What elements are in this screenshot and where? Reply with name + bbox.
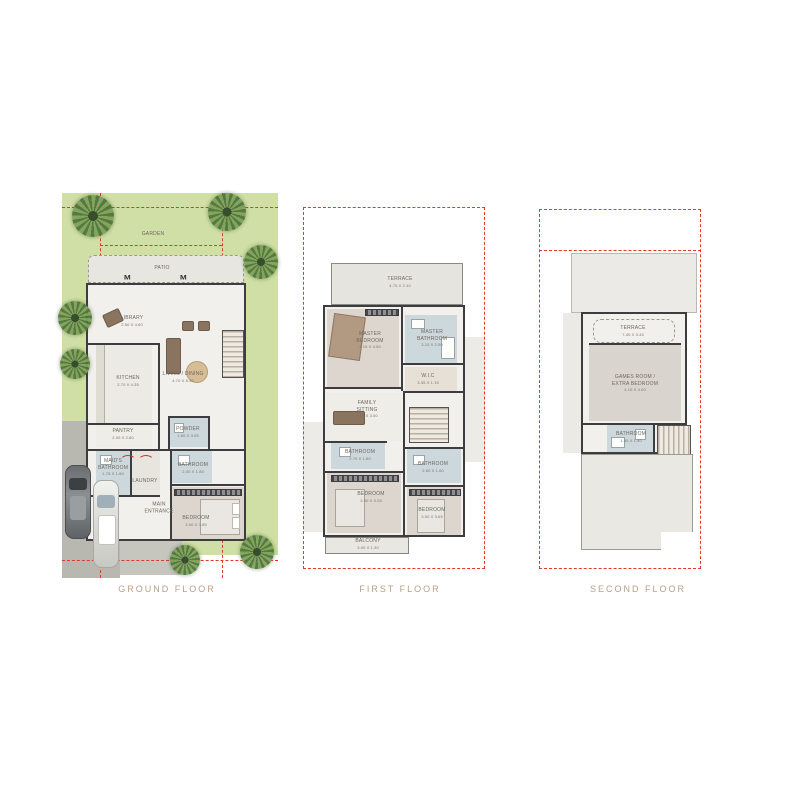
armchair — [198, 321, 210, 331]
ground-floor-plan: M M GARDEN PATIO LIBRARY 2.50 — [62, 193, 278, 578]
room-label-bathroom-2: BATHROOM 2.60 X 1.60 — [418, 461, 448, 473]
wall-segment — [403, 363, 465, 365]
first-floor-plan: TERRACE 4.70 X 2.10 MASTER BEDROOM 4.15 … — [295, 197, 492, 580]
palm-tree — [170, 545, 200, 575]
room-dims: 7.40 X 3.45 — [622, 332, 644, 337]
wall-segment — [323, 387, 403, 389]
room-dims: 3.90 X 3.25 — [360, 498, 382, 503]
car-white — [93, 480, 119, 568]
room-dims: 4.10 X 4.00 — [624, 387, 646, 392]
room-dims: 2.00 X 2.80 — [112, 435, 134, 440]
pillow — [232, 517, 240, 529]
room-label-bedroom-2: BEDROOM 3.50 X 3.65 — [418, 507, 445, 519]
car-windshield — [69, 478, 87, 490]
room-label-bathroom: BATHROOM 1.85 X 1.40 — [616, 431, 646, 443]
palm-tree — [240, 535, 274, 569]
room-label-bedroom-1: BEDROOM 3.90 X 3.25 — [357, 491, 384, 503]
wardrobe — [365, 309, 399, 316]
room-label-terrace: TERRACE 4.70 X 2.10 — [387, 276, 412, 288]
floor-title-second: SECOND FLOOR — [590, 584, 686, 594]
palm-tree — [72, 195, 114, 237]
palm-tree — [208, 193, 246, 231]
room-name: LAUNDRY — [132, 478, 157, 485]
room-dims: 4.00 X 3.50 — [356, 413, 378, 418]
room-label-master-bathroom: MASTER BATHROOM 3.10 X 2.50 — [413, 329, 451, 347]
wall-segment — [168, 416, 170, 449]
room-dims: 4.70 X 8.30 — [172, 378, 194, 383]
room-dims: 1.60 X 3.05 — [177, 433, 199, 438]
room-label-master-bedroom: MASTER BEDROOM 4.15 X 4.50 — [352, 331, 388, 349]
wall-segment — [323, 471, 403, 473]
room-name: FAMILY SITTING — [351, 400, 383, 413]
wall-segment — [403, 391, 465, 393]
wall-segment — [86, 423, 160, 425]
wall-segment — [323, 441, 387, 443]
room-dims: 2.70 X 1.60 — [349, 456, 371, 461]
room-dims: 1.75 X 1.60 — [102, 471, 124, 476]
door-mark: M — [180, 276, 187, 281]
room-name: MASTER BATHROOM — [413, 329, 451, 342]
palm-tree — [244, 245, 278, 279]
floor-plans-page: M M GARDEN PATIO LIBRARY 2.50 — [0, 0, 800, 800]
room-dims: 3.00 X 3.85 — [185, 522, 207, 527]
wall-segment — [405, 447, 465, 449]
room-label-family-sitting: FAMILY SITTING 4.00 X 3.50 — [351, 400, 383, 418]
room-dims: 2.60 X 1.60 — [422, 468, 444, 473]
plot-boundary-line — [100, 245, 222, 246]
floor-title-first: FIRST FLOOR — [359, 584, 440, 594]
room-dims: 4.70 X 2.10 — [389, 283, 411, 288]
wardrobe — [331, 475, 399, 482]
wall-segment — [168, 416, 210, 418]
kitchen-counter — [96, 345, 105, 423]
roof-strip — [563, 313, 581, 453]
room-dims: 3.90 X 1.30 — [357, 545, 379, 550]
room-dims: 4.15 X 4.50 — [359, 344, 381, 349]
room-dims: 2.50 X 4.60 — [121, 322, 143, 327]
wall-segment — [172, 484, 246, 486]
stairs — [409, 407, 449, 443]
wall-segment — [86, 343, 160, 345]
room-label-pantry: PANTRY 2.00 X 2.80 — [112, 428, 134, 440]
room-name: MAID'S BATHROOM — [96, 458, 130, 471]
room-label-bathroom: BATHROOM 2.00 X 1.85 — [178, 462, 208, 474]
palm-tree — [60, 349, 90, 379]
room-dims: 3.35 X 1.15 — [417, 380, 439, 385]
wall-segment — [405, 485, 465, 487]
second-floor-plan: TERRACE 7.40 X 3.45 GAMES ROOM / EXTRA B… — [535, 197, 705, 580]
room-label-living-dining: LIVING / DINING 4.70 X 8.30 — [162, 371, 203, 383]
room-name: PATIO — [154, 265, 169, 272]
room-label-powder: POWDER 1.60 X 3.05 — [176, 426, 200, 438]
wardrobe — [409, 489, 461, 496]
roof-terrace-notch — [661, 532, 694, 551]
plot-boundary-line — [539, 250, 701, 251]
roof-area — [571, 253, 697, 313]
room-label-laundry: LAUNDRY — [132, 478, 157, 485]
room-dims: 2.70 X 4.35 — [117, 382, 139, 387]
room-name: MASTER BEDROOM — [352, 331, 388, 344]
wall-segment — [589, 343, 681, 345]
wall-segment — [208, 416, 210, 449]
room-dims: 1.85 X 1.40 — [620, 438, 642, 443]
room-dims: 3.10 X 2.50 — [421, 342, 443, 347]
wall-segment — [401, 305, 403, 391]
room-label-library: LIBRARY 2.50 X 4.60 — [121, 315, 144, 327]
room-label-balcony: BALCONY 3.90 X 1.30 — [355, 538, 380, 550]
stairs — [222, 330, 244, 378]
armchair — [182, 321, 194, 331]
room-label-wic: W.I.C 3.35 X 1.15 — [417, 373, 439, 385]
car-roof — [98, 515, 116, 545]
car-roof — [70, 496, 86, 520]
sofa — [166, 338, 181, 374]
car-dark — [65, 465, 91, 539]
wall-segment — [403, 393, 405, 537]
room-label-main-entrance: MAIN ENTRANCE — [146, 502, 172, 515]
pillow — [232, 503, 240, 515]
room-label-garden: GARDEN — [142, 231, 165, 238]
room-label-bathroom-1: BATHROOM 2.70 X 1.60 — [345, 449, 375, 461]
car-windshield — [97, 495, 115, 508]
wall-segment — [86, 449, 246, 451]
floor-title-ground: GROUND FLOOR — [118, 584, 216, 594]
room-label-games-room: GAMES ROOM / EXTRA BEDROOM 4.10 X 4.00 — [607, 374, 663, 392]
room-label-terrace: TERRACE 7.40 X 3.45 — [620, 325, 645, 337]
room-name: GAMES ROOM / EXTRA BEDROOM — [607, 374, 663, 387]
room-label-maids-bathroom: MAID'S BATHROOM 1.75 X 1.60 — [96, 458, 130, 476]
room-dims: 2.00 X 1.85 — [182, 469, 204, 474]
room-label-patio: PATIO — [154, 265, 169, 272]
wall-segment — [158, 343, 160, 449]
door-mark: M — [124, 276, 131, 281]
room-label-kitchen: KITCHEN 2.70 X 4.35 — [116, 375, 139, 387]
room-label-bedroom: BEDROOM 3.00 X 3.85 — [182, 515, 209, 527]
wall-segment — [653, 423, 655, 453]
room-name: GARDEN — [142, 231, 165, 238]
wall-segment — [170, 449, 172, 541]
gate-swing-arc — [138, 455, 154, 467]
room-name: MAIN ENTRANCE — [144, 502, 173, 515]
wardrobe — [174, 489, 242, 496]
room-dims: 3.50 X 3.65 — [421, 514, 443, 519]
sink-fixture — [411, 319, 425, 329]
palm-tree — [58, 301, 92, 335]
